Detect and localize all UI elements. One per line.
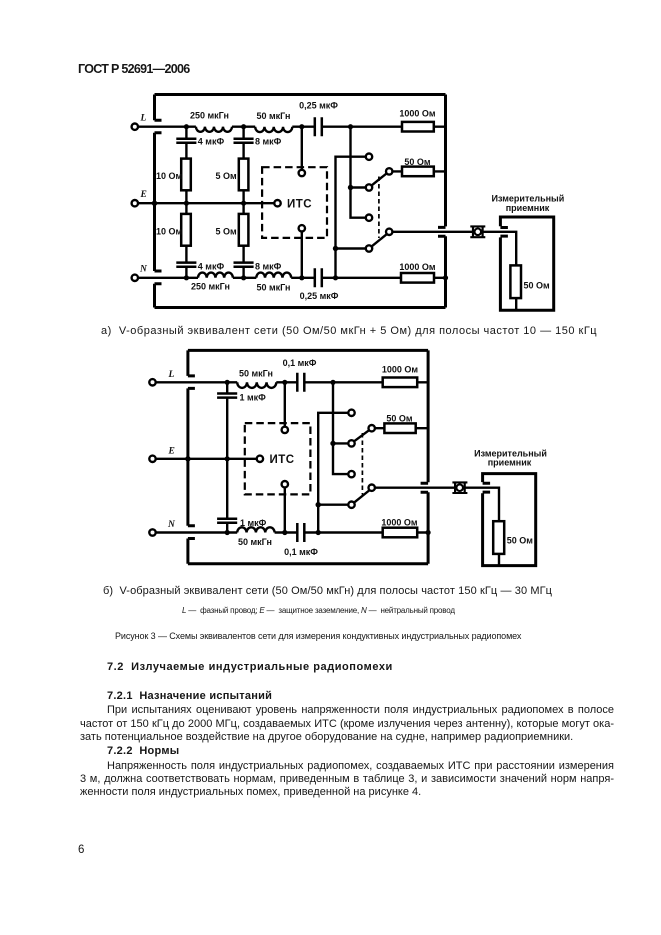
svg-text:50 Ом: 50 Ом bbox=[404, 157, 431, 167]
svg-text:250 мкГн: 250 мкГн bbox=[190, 111, 229, 121]
svg-text:0,25 мкФ: 0,25 мкФ bbox=[299, 101, 338, 111]
svg-text:N: N bbox=[139, 265, 148, 275]
svg-text:250 мкГн: 250 мкГн bbox=[191, 282, 230, 292]
svg-text:50 мкГн: 50 мкГн bbox=[238, 537, 272, 547]
svg-text:0,1 мкФ: 0,1 мкФ bbox=[284, 547, 318, 557]
svg-text:4 мкФ: 4 мкФ bbox=[198, 136, 225, 146]
svg-text:8 мкФ: 8 мкФ bbox=[255, 136, 282, 146]
svg-text:1 мкФ: 1 мкФ bbox=[240, 518, 267, 528]
svg-text:50 Ом: 50 Ом bbox=[524, 280, 551, 290]
svg-text:приемник: приемник bbox=[506, 203, 550, 213]
svg-text:50 Ом: 50 Ом bbox=[386, 413, 413, 423]
svg-text:L: L bbox=[140, 114, 147, 124]
svg-text:L: L bbox=[168, 370, 175, 380]
svg-text:приемник: приемник bbox=[488, 457, 532, 467]
svg-text:E: E bbox=[168, 447, 175, 457]
svg-text:1000 Ом: 1000 Ом bbox=[381, 517, 418, 527]
svg-text:0,25 мкФ: 0,25 мкФ bbox=[300, 291, 339, 301]
svg-text:ИТС: ИТС bbox=[287, 198, 312, 210]
svg-text:1000 Ом: 1000 Ом bbox=[382, 365, 419, 375]
svg-text:5 Ом: 5 Ом bbox=[216, 171, 238, 181]
svg-text:Измерительный: Измерительный bbox=[492, 193, 565, 203]
svg-text:8 мкФ: 8 мкФ bbox=[255, 262, 282, 272]
svg-text:50 мкГн: 50 мкГн bbox=[257, 282, 291, 292]
svg-text:10 Ом: 10 Ом bbox=[156, 171, 183, 181]
svg-text:N: N bbox=[167, 520, 176, 530]
svg-text:ИТС: ИТС bbox=[270, 454, 295, 466]
svg-text:10 Ом: 10 Ом bbox=[156, 227, 183, 237]
svg-text:50 мкГн: 50 мкГн bbox=[257, 111, 291, 121]
svg-text:1000 Ом: 1000 Ом bbox=[399, 108, 436, 118]
svg-text:1000 Ом: 1000 Ом bbox=[399, 262, 436, 272]
svg-text:5 Ом: 5 Ом bbox=[216, 227, 238, 237]
svg-text:4 мкФ: 4 мкФ bbox=[198, 262, 225, 272]
svg-text:50 мкГн: 50 мкГн bbox=[239, 368, 273, 378]
svg-text:1 мкФ: 1 мкФ bbox=[240, 393, 267, 403]
svg-text:E: E bbox=[140, 190, 147, 200]
svg-text:50 Ом: 50 Ом bbox=[507, 536, 534, 546]
svg-text:0,1 мкФ: 0,1 мкФ bbox=[283, 358, 317, 368]
